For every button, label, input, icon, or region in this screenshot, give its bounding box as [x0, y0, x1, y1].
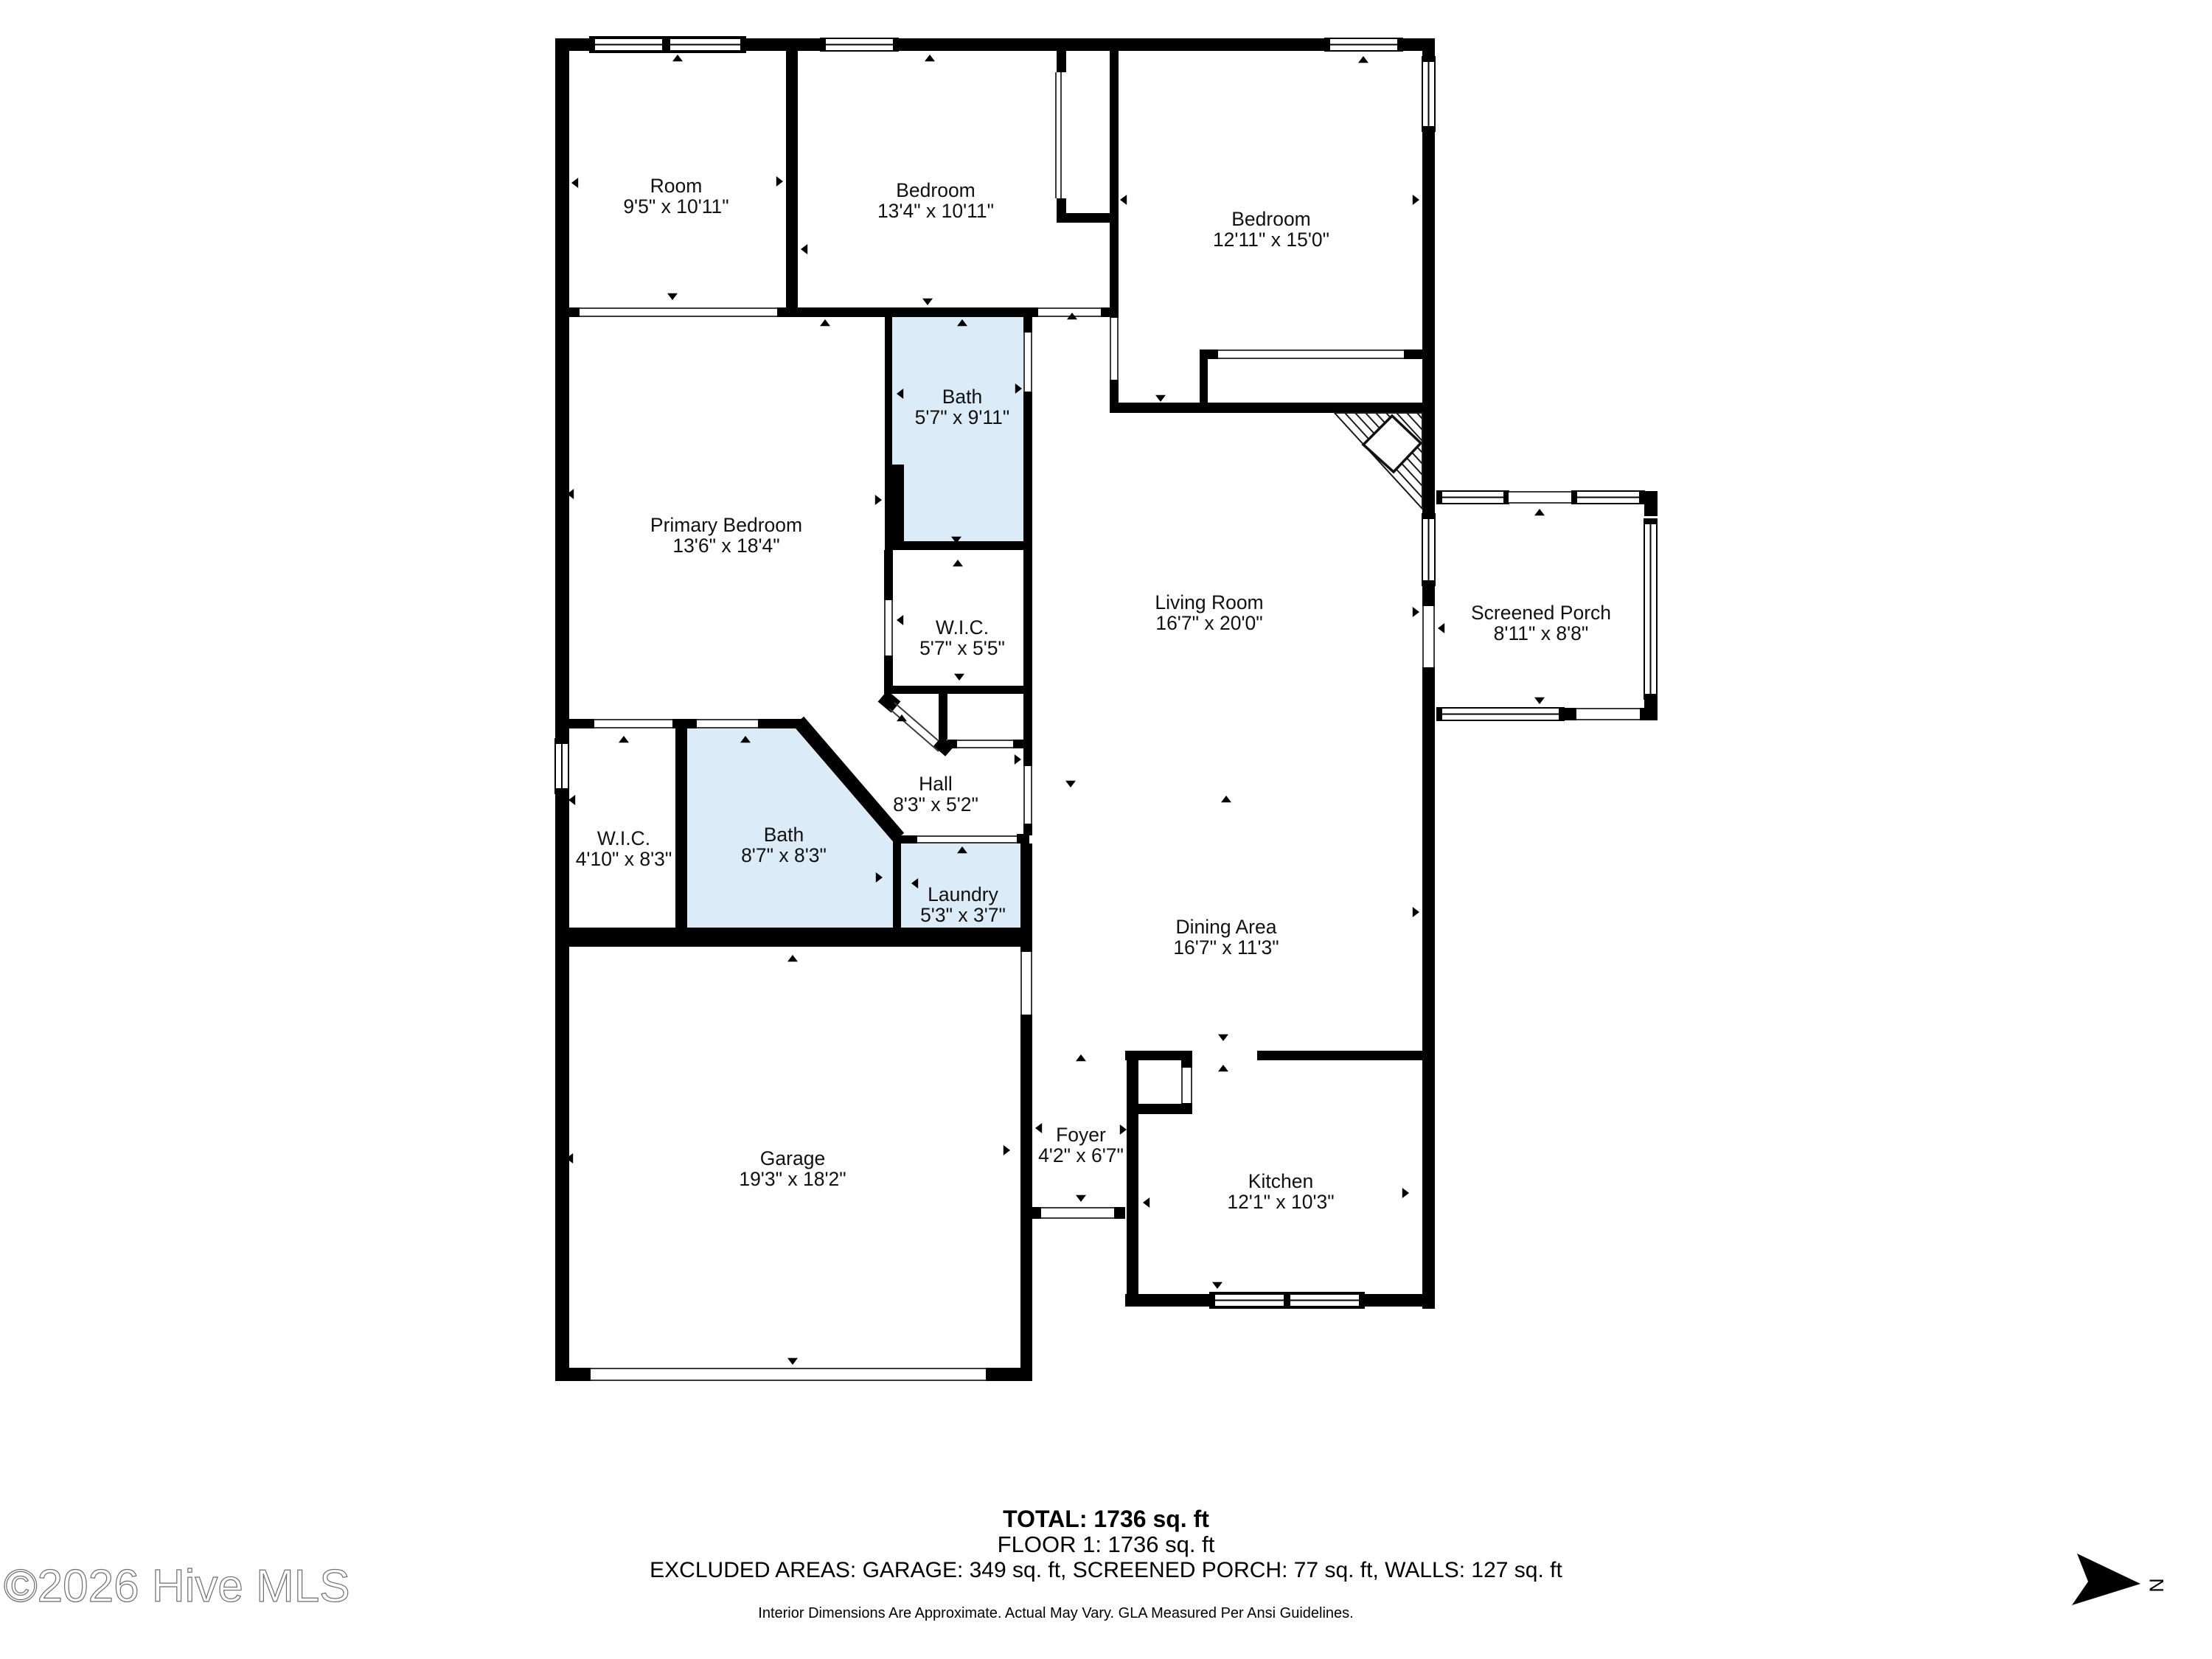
svg-text:9'5" x 10'11": 9'5" x 10'11"	[623, 195, 728, 218]
svg-text:5'3" x 3'7": 5'3" x 3'7"	[920, 904, 1006, 926]
svg-text:8'7" x 8'3": 8'7" x 8'3"	[741, 844, 827, 866]
svg-text:Kitchen: Kitchen	[1248, 1170, 1313, 1192]
svg-text:©2026 Hive MLS: ©2026 Hive MLS	[4, 1561, 350, 1612]
svg-text:4'10" x 8'3": 4'10" x 8'3"	[576, 848, 672, 870]
svg-text:Garage: Garage	[760, 1147, 825, 1169]
svg-text:Primary Bedroom: Primary Bedroom	[650, 514, 802, 536]
svg-text:W.I.C.: W.I.C.	[597, 827, 650, 849]
svg-text:13'4" x 10'11": 13'4" x 10'11"	[877, 200, 994, 222]
svg-text:8'3" x 5'2": 8'3" x 5'2"	[893, 793, 978, 815]
svg-text:Living Room: Living Room	[1155, 591, 1263, 613]
svg-text:W.I.C.: W.I.C.	[936, 616, 989, 639]
svg-text:Foyer: Foyer	[1056, 1124, 1106, 1146]
svg-text:5'7" x 5'5": 5'7" x 5'5"	[919, 637, 1005, 659]
svg-text:Interior Dimensions Are Approx: Interior Dimensions Are Approximate. Act…	[758, 1605, 1353, 1621]
svg-text:Bedroom: Bedroom	[1231, 208, 1311, 230]
svg-text:Dining Area: Dining Area	[1175, 916, 1276, 938]
svg-text:8'11" x 8'8": 8'11" x 8'8"	[1494, 622, 1589, 644]
svg-text:TOTAL: 1736 sq. ft: TOTAL: 1736 sq. ft	[1003, 1506, 1209, 1532]
svg-text:FLOOR 1: 1736 sq. ft: FLOOR 1: 1736 sq. ft	[998, 1531, 1215, 1557]
svg-text:Laundry: Laundry	[928, 883, 999, 905]
svg-text:Hall: Hall	[919, 773, 953, 795]
svg-text:5'7" x 9'11": 5'7" x 9'11"	[915, 406, 1010, 428]
svg-text:12'11" x 15'0": 12'11" x 15'0"	[1213, 229, 1329, 251]
svg-text:16'7" x 11'3": 16'7" x 11'3"	[1173, 936, 1279, 959]
svg-text:Bedroom: Bedroom	[896, 179, 975, 201]
svg-text:EXCLUDED AREAS: GARAGE: 349 sq: EXCLUDED AREAS: GARAGE: 349 sq. ft, SCRE…	[650, 1558, 1562, 1582]
svg-text:16'7" x 20'0": 16'7" x 20'0"	[1155, 612, 1262, 634]
svg-text:12'1" x 10'3": 12'1" x 10'3"	[1227, 1191, 1334, 1213]
svg-text:Screened Porch: Screened Porch	[1471, 602, 1611, 624]
svg-text:Bath: Bath	[764, 824, 804, 846]
svg-text:Room: Room	[650, 175, 703, 197]
svg-text:19'3" x 18'2": 19'3" x 18'2"	[739, 1168, 846, 1190]
svg-text:4'2" x 6'7": 4'2" x 6'7"	[1038, 1144, 1124, 1166]
svg-text:13'6" x 18'4": 13'6" x 18'4"	[672, 535, 779, 557]
svg-text:Bath: Bath	[942, 386, 983, 408]
svg-text:N: N	[2146, 1578, 2168, 1593]
